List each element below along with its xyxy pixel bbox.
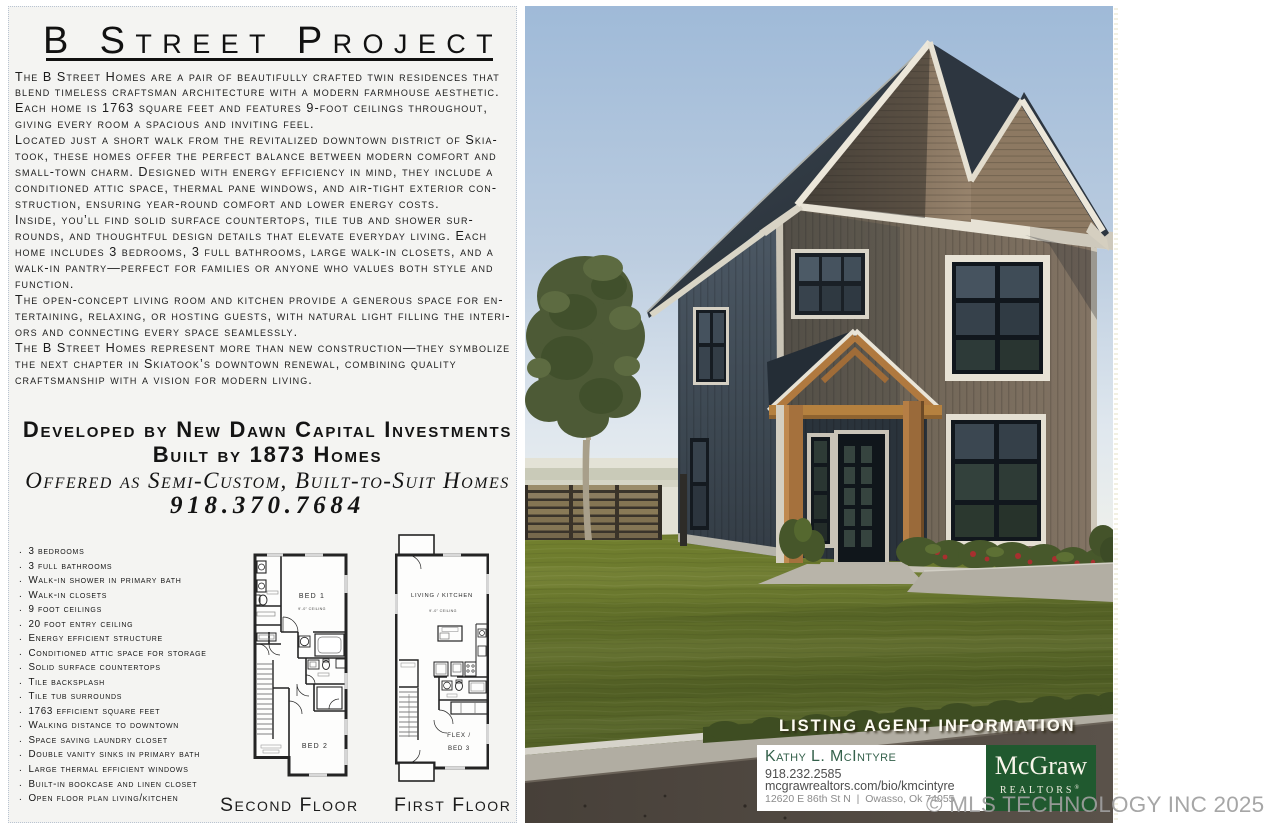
- svg-text:9'-0" CEILING: 9'-0" CEILING: [429, 609, 457, 613]
- svg-text:9'-0" CEILING: 9'-0" CEILING: [298, 607, 326, 611]
- svg-text:BED 1: BED 1: [299, 593, 325, 600]
- svg-text:FLEX /: FLEX /: [447, 732, 471, 739]
- svg-text:BED 2: BED 2: [302, 743, 328, 750]
- svg-text:LIVING / KITCHEN: LIVING / KITCHEN: [411, 593, 473, 599]
- svg-text:BED 3: BED 3: [448, 745, 470, 752]
